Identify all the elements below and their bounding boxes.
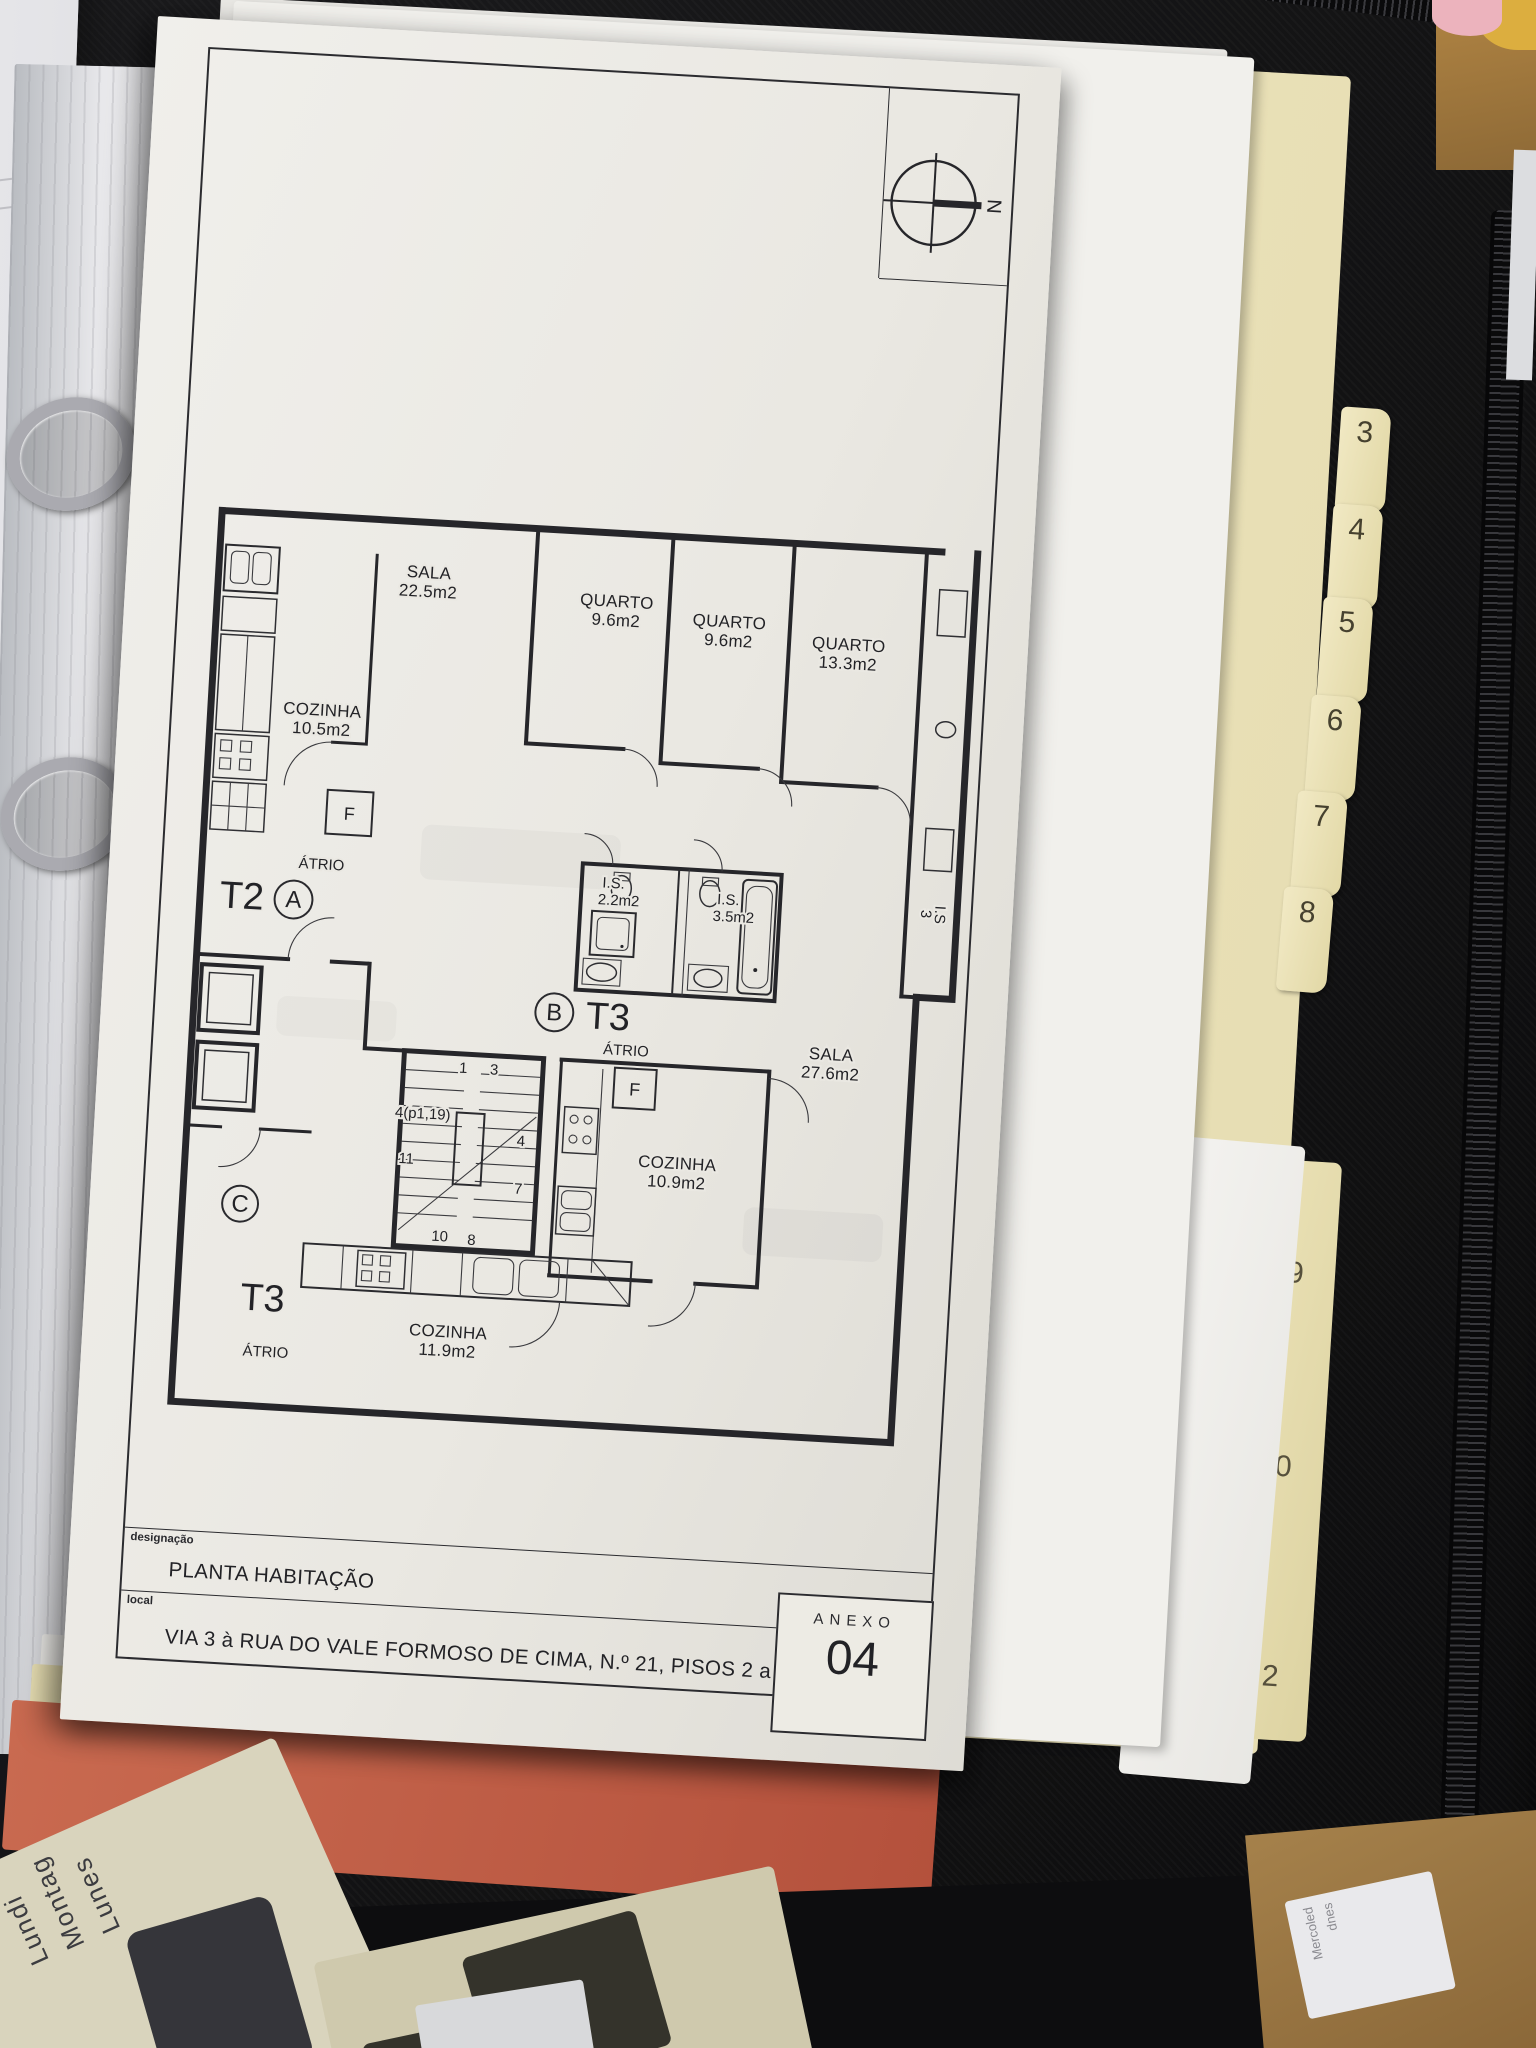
photo-scene: 3 4 5 6 7 8 9 0 2 N <box>0 0 1536 2048</box>
north-arrow <box>934 203 982 206</box>
title-block: designação PLANTA HABITAÇÃO local VIA 3 … <box>118 1527 933 1703</box>
room-label-sala-a: SALA22.5m2 <box>398 562 458 603</box>
svg-text:T3: T3 <box>239 1276 286 1320</box>
tab-label: 3 <box>1355 416 1374 450</box>
anexo-number: 04 <box>775 1627 930 1691</box>
room-label-cozinha-a: COZINHA10.5m2 <box>282 698 363 740</box>
svg-text:3: 3 <box>490 1061 499 1078</box>
local-label: local <box>126 1594 153 1607</box>
designacao-value: PLANTA HABITAÇÃO <box>168 1558 375 1594</box>
svg-text:C: C <box>231 1190 250 1218</box>
tab-label: 4 <box>1347 513 1366 547</box>
room-label-atrio-a: ÁTRIO <box>298 855 345 875</box>
calendar-card-right: Mercoled dnes <box>1284 1871 1456 2020</box>
index-tab-6[interactable]: 6 <box>1304 694 1362 802</box>
room-label-is-2: I.S.3.5m2 <box>712 891 755 927</box>
floor-plan-drawing: SALA22.5m2 QUARTO9.6m2 QUARTO9.6m2 QUART… <box>142 487 983 1477</box>
svg-text:T3: T3 <box>585 995 632 1039</box>
room-label-sala-b: SALA27.6m2 <box>800 1044 860 1085</box>
tab-label: 7 <box>1312 799 1331 833</box>
svg-text:10: 10 <box>431 1228 449 1246</box>
tab-label: 5 <box>1337 606 1356 640</box>
svg-text:8: 8 <box>467 1232 476 1249</box>
room-label-quarto-2: QUARTO9.6m2 <box>691 610 767 652</box>
svg-text:T2: T2 <box>219 874 266 918</box>
unit-b-tag: B T3 <box>534 992 631 1039</box>
svg-text:7: 7 <box>514 1181 523 1198</box>
door-arcs <box>209 727 914 1368</box>
designacao-label: designação <box>130 1531 194 1547</box>
calendar-day-words: Lundi Montag Lunes <box>0 1835 127 1970</box>
elevator-shafts <box>194 964 262 1111</box>
unit-a-tag: T2 A <box>219 874 314 921</box>
calendar-word-partial: dnes <box>1320 1902 1341 1933</box>
room-label-cozinha-c: COZINHA11.9m2 <box>407 1320 488 1362</box>
room-label-atrio-b: ÁTRIO <box>603 1041 650 1061</box>
svg-text:11: 11 <box>398 1150 414 1168</box>
tab-label: 8 <box>1298 895 1317 929</box>
svg-text:4: 4 <box>516 1133 525 1150</box>
room-label-quarto-1: QUARTO9.6m2 <box>579 590 655 632</box>
stair-numbers: 1 3 4(p1,19) 4 11 7 10 8 <box>387 1056 529 1252</box>
index-tab-8[interactable]: 8 <box>1276 886 1335 994</box>
calendar-numeral-shape <box>124 1894 315 2048</box>
wood-floor-corner: Mercoled dnes <box>1245 1809 1536 2048</box>
index-tab-2-partial[interactable]: 2 <box>1261 1659 1280 1694</box>
north-compass: N <box>878 140 1005 267</box>
room-label-atrio-c: ÁTRIO <box>242 1342 289 1362</box>
appliance-label-f1: F <box>343 804 355 825</box>
index-tab-3[interactable]: 3 <box>1334 406 1391 513</box>
svg-text:B: B <box>546 999 563 1027</box>
frame-corner-line <box>879 278 1007 286</box>
index-tab-4[interactable]: 4 <box>1326 503 1383 610</box>
room-label-is-3: I.S3 <box>917 904 949 924</box>
bathtub <box>737 880 777 995</box>
north-label: N <box>982 199 1005 215</box>
index-tab-5[interactable]: 5 <box>1316 596 1373 703</box>
unit-c-tag: C T3 <box>216 1185 291 1321</box>
drawing-frame: N <box>115 47 1020 1705</box>
anexo-box: ANEXO 04 <box>770 1592 934 1741</box>
kitchen-a-fixtures <box>210 545 387 839</box>
stair-core <box>393 1051 543 1254</box>
svg-text:A: A <box>285 886 303 914</box>
tab-label: 6 <box>1326 703 1345 737</box>
room-label-quarto-3: QUARTO13.3m2 <box>810 633 886 675</box>
kitchen-c <box>301 1243 632 1306</box>
svg-text:4(p1,19): 4(p1,19) <box>395 1104 451 1124</box>
appliance-label-f2: F <box>629 1079 641 1100</box>
floor-plan-sheet[interactable]: N <box>60 16 1062 1771</box>
svg-text:1: 1 <box>459 1060 468 1077</box>
room-label-is-1: I.S.2.2m2 <box>597 874 640 910</box>
room-label-cozinha-b: COZINHA10.9m2 <box>637 1152 718 1194</box>
local-value: VIA 3 à RUA DO VALE FORMOSO DE CIMA, N.º… <box>164 1625 816 1686</box>
index-tab-7[interactable]: 7 <box>1290 790 1348 898</box>
